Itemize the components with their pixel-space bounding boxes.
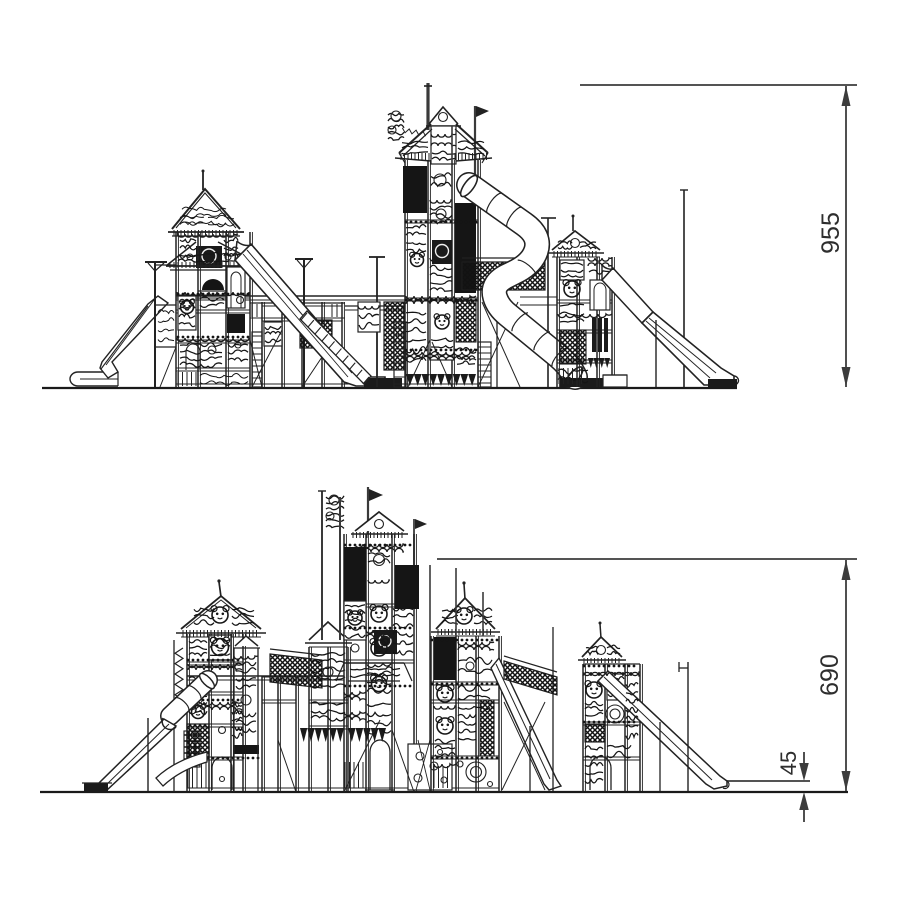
svg-text:955: 955 [817,212,845,254]
svg-text:690: 690 [816,654,844,696]
svg-text:45: 45 [776,751,801,775]
